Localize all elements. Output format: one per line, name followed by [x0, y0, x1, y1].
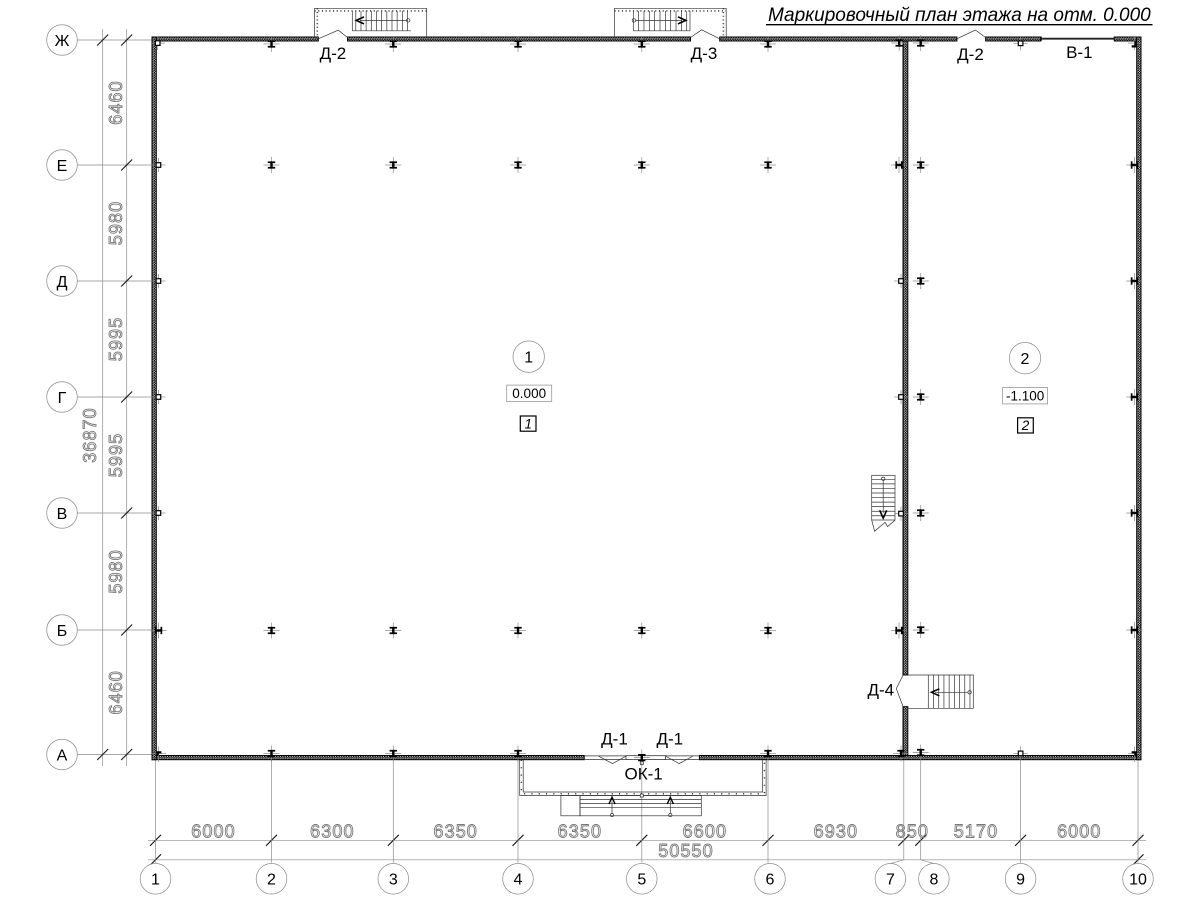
svg-text:5980: 5980	[106, 549, 126, 593]
svg-text:В-1: В-1	[1066, 43, 1092, 62]
svg-text:6930: 6930	[814, 821, 858, 841]
svg-text:0.000: 0.000	[512, 386, 546, 401]
svg-text:Д-1: Д-1	[656, 730, 683, 749]
svg-text:6300: 6300	[310, 821, 354, 841]
svg-text:6460: 6460	[106, 670, 126, 714]
svg-text:2: 2	[1021, 351, 1030, 368]
svg-text:Д: Д	[57, 274, 68, 291]
svg-text:Б: Б	[57, 623, 68, 640]
svg-text:В: В	[57, 506, 68, 523]
svg-text:Е: Е	[57, 158, 68, 175]
svg-text:Д-1: Д-1	[601, 730, 628, 749]
svg-text:10: 10	[1129, 872, 1147, 889]
svg-text:8: 8	[929, 872, 938, 889]
svg-text:1: 1	[524, 416, 532, 431]
svg-text:3: 3	[389, 872, 398, 889]
svg-text:А: А	[57, 747, 68, 764]
svg-text:Д-4: Д-4	[867, 681, 894, 700]
svg-text:2: 2	[267, 872, 276, 889]
svg-text:6600: 6600	[683, 821, 727, 841]
svg-text:6000: 6000	[191, 821, 235, 841]
svg-text:5980: 5980	[106, 201, 126, 245]
svg-text:ОК-1: ОК-1	[624, 765, 662, 784]
svg-text:Д-3: Д-3	[691, 44, 718, 63]
svg-text:50550: 50550	[658, 841, 714, 861]
svg-text:7: 7	[886, 872, 895, 889]
svg-text:Ж: Ж	[55, 33, 70, 50]
svg-text:1: 1	[151, 872, 160, 889]
svg-text:Д-2: Д-2	[957, 45, 984, 64]
svg-text:36870: 36870	[80, 407, 100, 463]
svg-text:6000: 6000	[1057, 821, 1101, 841]
svg-text:2: 2	[1021, 418, 1030, 433]
svg-text:5: 5	[637, 872, 646, 889]
svg-text:5995: 5995	[106, 433, 126, 477]
svg-text:-1.100: -1.100	[1006, 388, 1044, 403]
svg-text:850: 850	[896, 821, 929, 841]
svg-text:Д-2: Д-2	[320, 44, 347, 63]
svg-text:5170: 5170	[954, 821, 998, 841]
svg-text:5995: 5995	[106, 317, 126, 361]
svg-text:9: 9	[1016, 872, 1025, 889]
svg-text:4: 4	[514, 872, 523, 889]
svg-text:6: 6	[766, 872, 775, 889]
svg-text:6460: 6460	[106, 80, 126, 124]
svg-text:Г: Г	[58, 390, 67, 407]
svg-text:6350: 6350	[433, 821, 477, 841]
svg-text:6350: 6350	[558, 821, 602, 841]
svg-text:Маркировочный план этажа на от: Маркировочный план этажа на отм. 0.000	[768, 5, 1151, 26]
svg-text:1: 1	[524, 349, 533, 366]
